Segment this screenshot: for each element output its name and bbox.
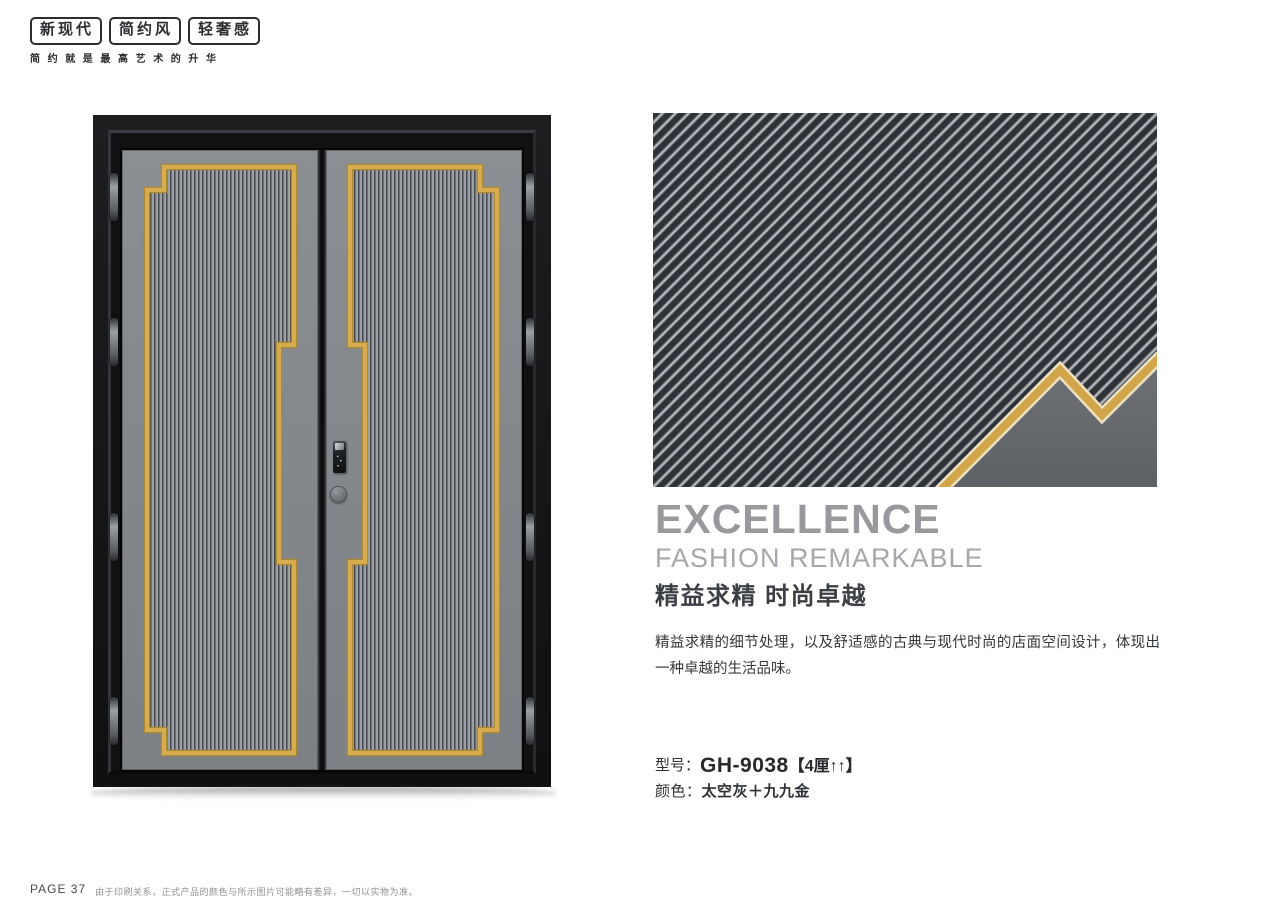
footer-disclaimer: 由于印刷关系，正式产品的颜色与所示图片可能略有差异，一切以实物为准。 [95,885,418,898]
banner-zigzag-graphic [653,113,1157,487]
hinge-right-4 [526,697,534,745]
subheadline-english: FASHION REMARKABLE [655,545,984,572]
model-label: 型号： [655,757,700,774]
door-leaf-left [122,150,318,770]
badge-modern: 新现代 [30,17,102,45]
brand-badges: 新现代 简约风 轻奢感 [30,17,230,45]
spec-model-row: 型号：GH-9038【4厘↑↑】 [655,752,862,778]
door-floor-shadow [90,787,556,800]
spec-color-row: 颜色：太空灰＋九九金 [655,780,810,801]
description-paragraph: 精益求精的细节处理，以及舒适感的古典与现代时尚的店面空间设计，体现出一种卓越的生… [655,630,1160,682]
door-opening [122,150,522,770]
smart-lock [333,441,346,473]
decorative-banner-image [653,113,1157,487]
model-value: GH-9038 [700,754,789,777]
headline-chinese: 精益求精 时尚卓越 [655,583,867,611]
hinge-left-1 [110,173,118,221]
brand-block: 新现代 简约风 轻奢感 简约就是最高艺术的升华 [30,17,230,65]
brand-slogan: 简约就是最高艺术的升华 [30,50,230,65]
hinge-right-3 [526,513,534,561]
hinge-left-3 [110,513,118,561]
model-note: 【4厘↑↑】 [789,758,862,775]
hinge-left-4 [110,697,118,745]
badge-minimal: 简约风 [109,17,181,45]
door-leaf-left-trim [122,150,318,770]
badge-luxury: 轻奢感 [188,17,260,45]
door-leaf-right [326,150,522,770]
smart-lock-screen [335,443,344,450]
headline-english: EXCELLENCE [655,499,941,540]
color-value: 太空灰＋九九金 [702,783,811,800]
door-leaf-right-trim [326,150,522,770]
lock-knob [330,486,347,503]
door-center-divider [318,150,326,770]
hinge-right-1 [526,173,534,221]
hinge-right-2 [526,318,534,366]
page-number: PAGE 37 [30,882,86,896]
door-product-image [93,115,551,787]
smart-lock-keypad [336,453,343,470]
hinge-left-2 [110,318,118,366]
color-label: 颜色： [655,783,702,800]
